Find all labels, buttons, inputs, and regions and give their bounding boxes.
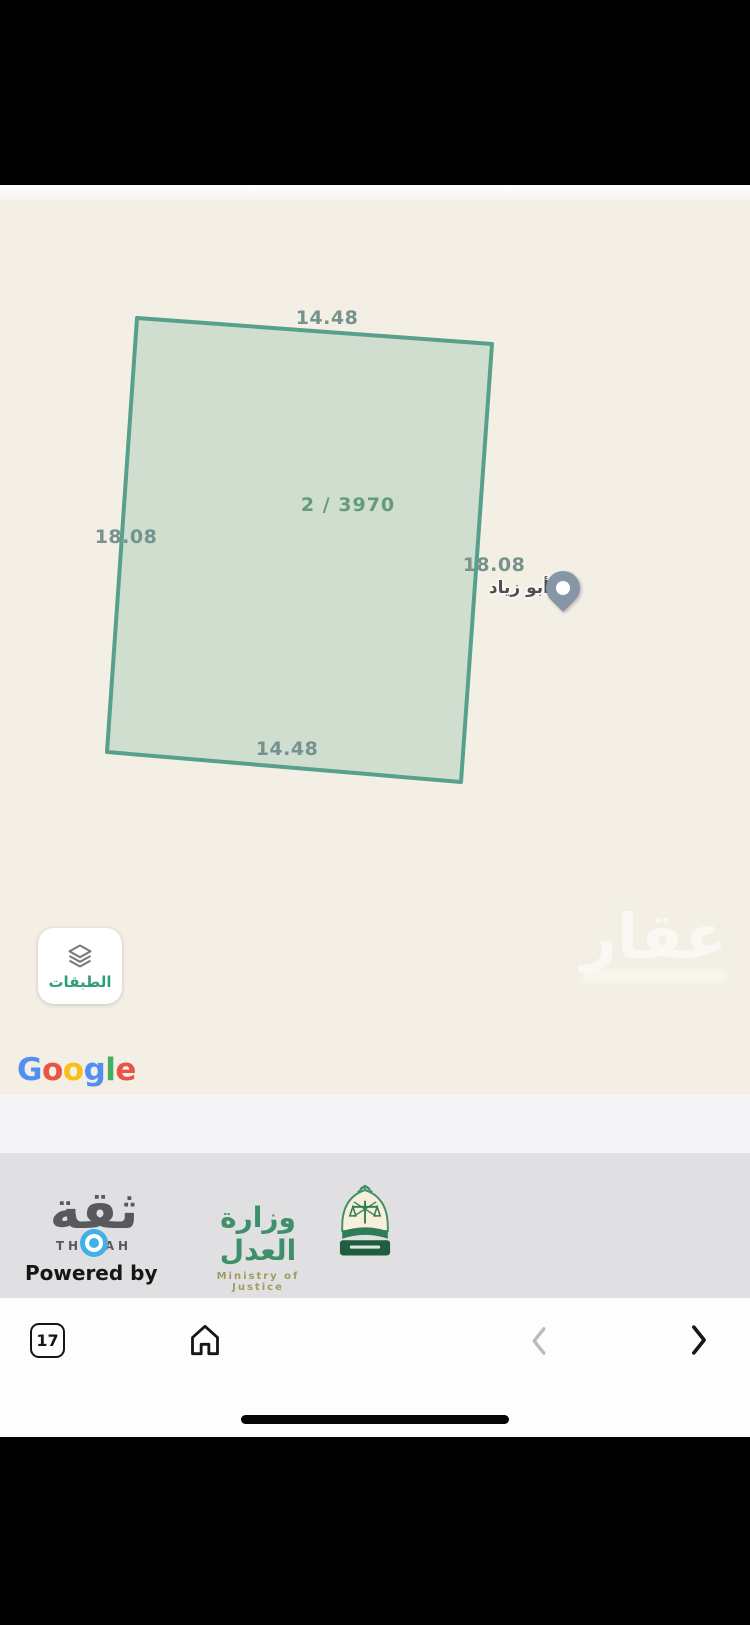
layers-button-label: الطبقات	[48, 973, 111, 991]
moj-wordmark: وزارة العدل Ministry of Justice	[193, 1201, 323, 1293]
map-canvas[interactable]: 14.48 2 / 3970 18.08 18.08 14.48 أبو زيا…	[0, 200, 750, 1095]
map-top-edge	[0, 185, 750, 200]
aqar-watermark: عقار	[581, 900, 727, 973]
moj-arabic-name: وزارة العدل	[193, 1201, 323, 1267]
layers-button[interactable]: الطبقات	[38, 928, 122, 1004]
layers-icon	[66, 942, 94, 970]
thiqah-arabic-wordmark: ثقة	[48, 1183, 140, 1239]
home-indicator[interactable]	[241, 1415, 509, 1424]
google-logo: Google	[17, 1052, 136, 1088]
parcel-dim-left: 18.08	[86, 526, 166, 548]
google-letter: g	[84, 1052, 106, 1088]
moj-english-name: Ministry of Justice	[193, 1271, 323, 1293]
bottom-black-area	[0, 1437, 750, 1625]
map-pin-dot	[553, 578, 573, 598]
place-label: أبو زياد	[489, 578, 549, 598]
home-button[interactable]	[185, 1320, 225, 1360]
content-strip	[0, 1095, 750, 1153]
parcel-dim-bottom: 14.48	[242, 738, 332, 760]
google-letter: e	[115, 1052, 136, 1088]
browser-nav-bar: 17	[0, 1298, 750, 1437]
google-letter: G	[17, 1052, 42, 1088]
thiqah-logo: ثقة THIQAH	[48, 1183, 140, 1253]
powered-by-label: Powered by	[25, 1261, 158, 1285]
tabs-button[interactable]: 17	[30, 1323, 65, 1358]
back-button[interactable]	[524, 1324, 554, 1358]
aqar-watermark-subtext	[582, 970, 727, 983]
footer-band: ثقة THIQAH Powered by وزارة العدل Minist…	[0, 1153, 750, 1298]
parcel-polygon[interactable]	[107, 318, 492, 782]
google-letter: o	[63, 1052, 84, 1088]
status-bar-area	[0, 0, 750, 185]
moj-emblem-icon	[327, 1182, 403, 1262]
parcel-dim-top: 14.48	[282, 307, 372, 329]
tab-count: 17	[36, 1331, 58, 1350]
google-letter: o	[42, 1052, 63, 1088]
google-letter: l	[105, 1052, 115, 1088]
parcel-dim-right: 18.08	[454, 554, 534, 576]
forward-button[interactable]	[683, 1322, 715, 1358]
parcel-number-label: 2 / 3970	[298, 494, 398, 516]
phone-screen: 14.48 2 / 3970 18.08 18.08 14.48 أبو زيا…	[0, 0, 750, 1625]
